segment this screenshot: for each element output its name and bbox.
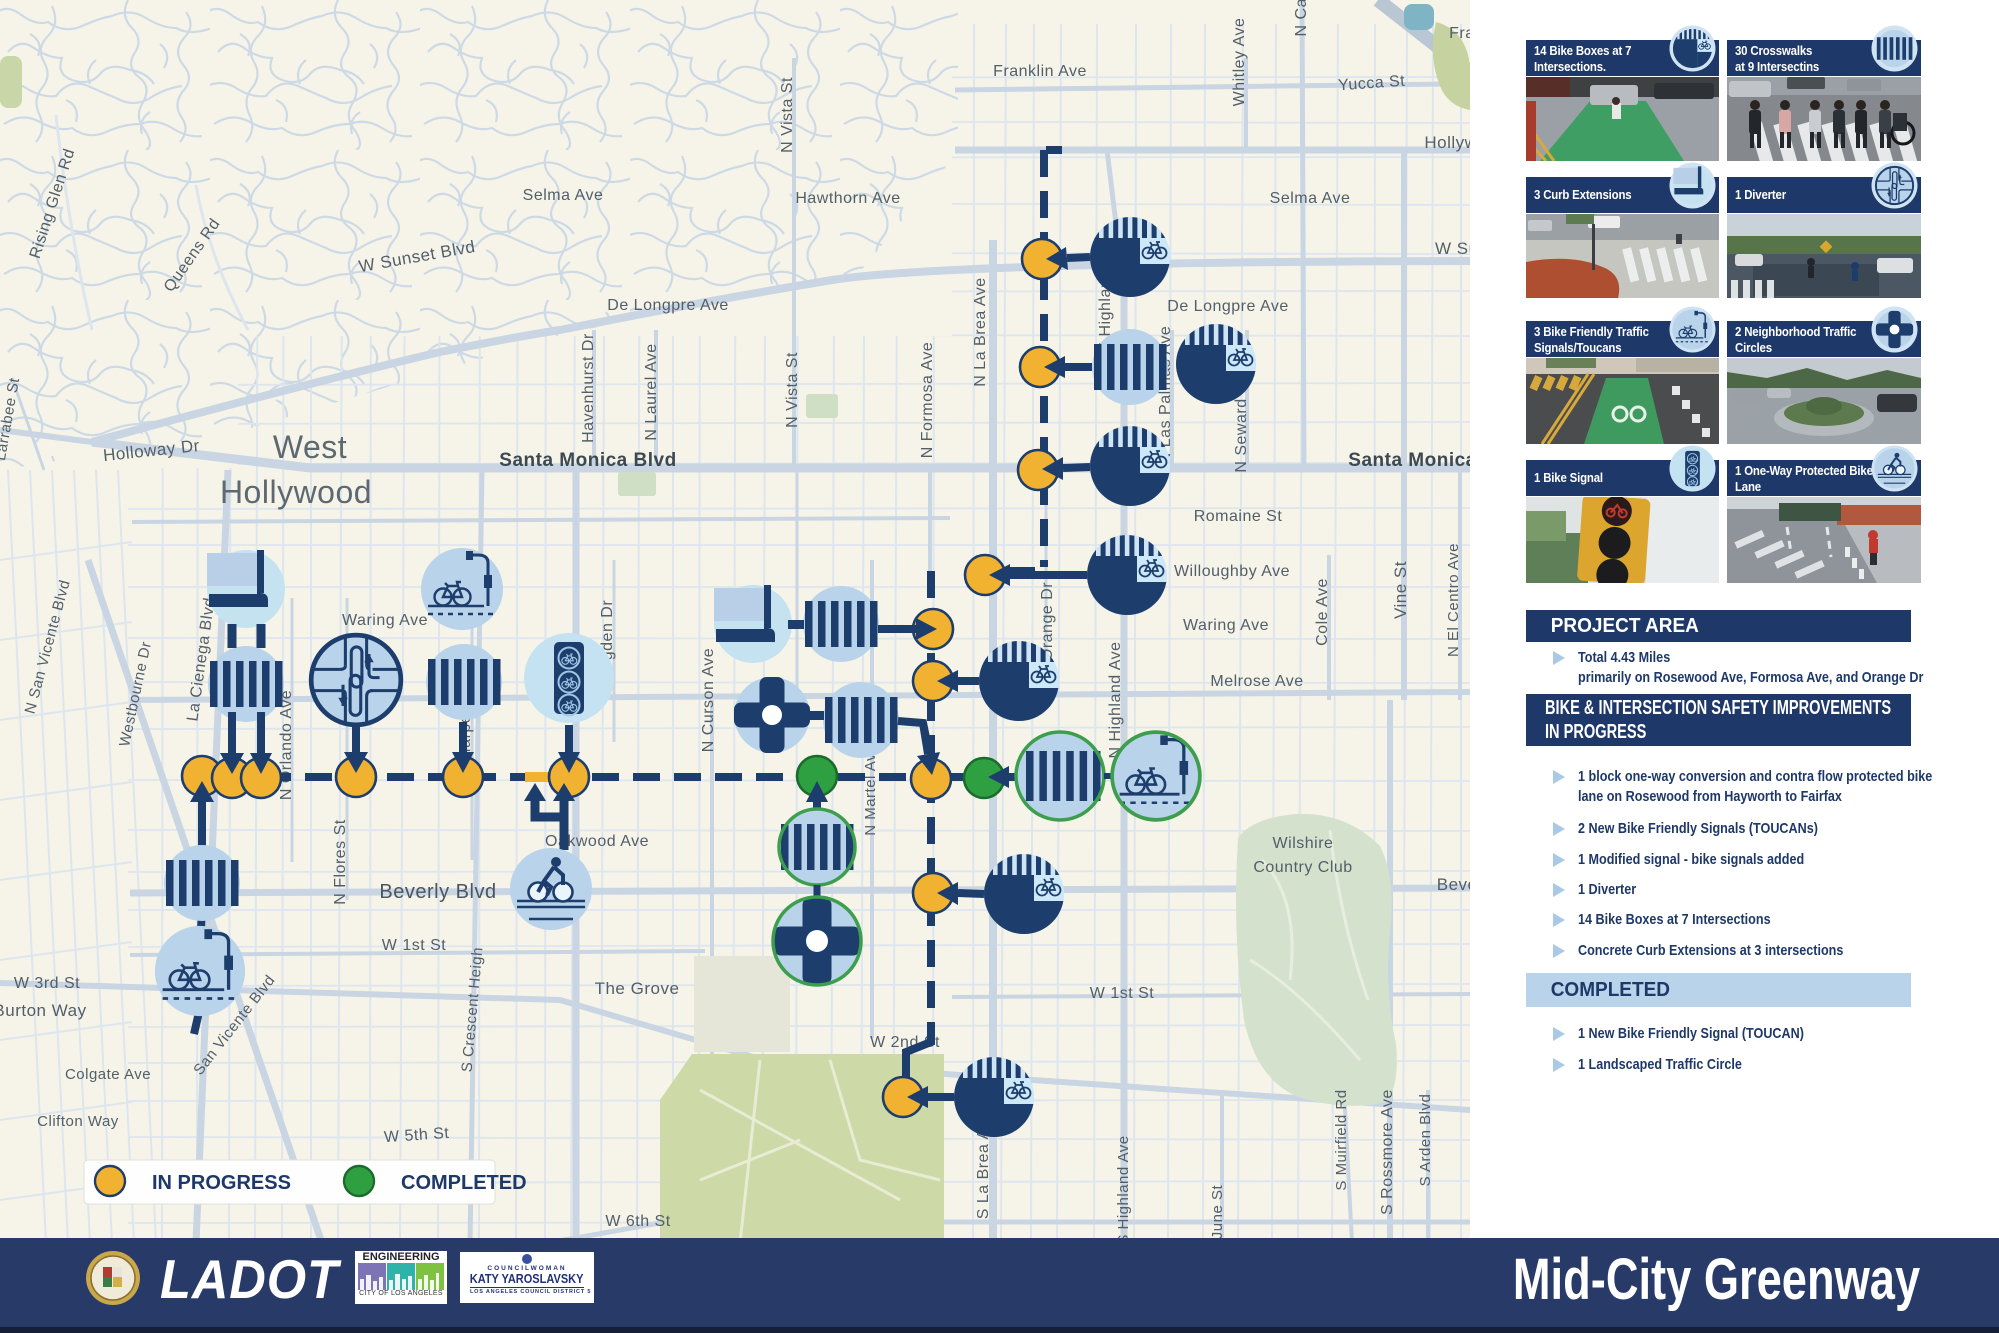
svg-text:N Martel Ave: N Martel Ave [862,744,879,836]
svg-text:Wilshire: Wilshire [1273,835,1334,852]
svg-text:Selma Ave: Selma Ave [523,187,604,204]
svg-text:IN PROGRESS: IN PROGRESS [152,1172,291,1194]
svg-text:S Muirfield Rd: S Muirfield Rd [1333,1089,1350,1190]
svg-text:Vine St: Vine St [1391,561,1410,619]
svg-text:N Flores St: N Flores St [332,819,349,905]
svg-text:Santa Monica Blvd: Santa Monica Blvd [1348,450,1470,471]
svg-text:S Highland Ave: S Highland Ave [1115,1135,1132,1243]
svg-text:De Longpre Ave: De Longpre Ave [1167,298,1288,315]
svg-text:June St: June St [1209,1184,1226,1239]
svg-text:Colgate Ave: Colgate Ave [65,1066,151,1083]
svg-text:Willoughby Ave: Willoughby Ave [1174,563,1290,580]
svg-text:Country Club: Country Club [1253,859,1352,876]
svg-text:Beverly Blvd: Beverly Blvd [1437,875,1470,894]
svg-text:West: West [273,429,347,465]
svg-text:Franklin Ave: Franklin Ave [993,63,1087,80]
svg-text:S Rossmore Ave: S Rossmore Ave [1379,1089,1396,1215]
svg-text:Havenhurst Dr: Havenhurst Dr [580,333,597,443]
svg-text:Hawthorn Ave: Hawthorn Ave [795,190,900,207]
svg-text:Cole Ave: Cole Ave [1314,578,1331,646]
svg-text:Selma Ave: Selma Ave [1270,190,1351,207]
svg-text:Melrose Ave: Melrose Ave [1210,673,1303,690]
svg-text:N La Brea Ave: N La Brea Ave [972,277,989,386]
svg-text:W Sunset Blvd: W Sunset Blvd [1435,239,1470,258]
svg-text:Franklin Ave: Franklin Ave [1449,25,1470,42]
svg-text:W 6th St: W 6th St [605,1213,670,1230]
svg-text:Burton Way: Burton Way [0,1001,87,1020]
svg-text:Romaine St: Romaine St [1194,508,1283,525]
svg-text:De Longpre Ave: De Longpre Ave [607,297,728,314]
svg-text:The Grove: The Grove [595,979,680,998]
svg-text:S Arden Blvd: S Arden Blvd [1417,1094,1434,1187]
svg-text:W 3rd St: W 3rd St [14,975,80,992]
svg-text:Hollywood Blvd: Hollywood Blvd [1424,133,1470,152]
svg-text:Clifton Way: Clifton Way [37,1113,119,1130]
svg-text:N Curson Ave: N Curson Ave [700,648,717,752]
svg-text:N Laurel Ave: N Laurel Ave [643,343,660,440]
svg-text:Whitley Ave: Whitley Ave [1231,18,1248,107]
svg-text:COMPLETED: COMPLETED [401,1172,527,1194]
svg-text:N Formosa Ave: N Formosa Ave [919,342,936,458]
svg-text:N Vista St: N Vista St [784,352,801,428]
svg-text:Waring Ave: Waring Ave [342,612,428,629]
svg-text:N Highland Ave: N Highland Ave [1107,642,1124,759]
svg-text:W 1st St: W 1st St [1090,985,1155,1002]
svg-text:N El Centro Ave: N El Centro Ave [1445,543,1462,657]
svg-text:Hollywood: Hollywood [220,474,372,510]
svg-text:Santa Monica Blvd: Santa Monica Blvd [499,450,676,471]
svg-text:N Cahuenga Blvd: N Cahuenga Blvd [1293,0,1310,36]
svg-text:Waring Ave: Waring Ave [1183,617,1269,634]
svg-text:W 1st St: W 1st St [382,937,447,954]
svg-text:Beverly Blvd: Beverly Blvd [379,881,496,903]
svg-text:N Vista St: N Vista St [779,77,796,153]
